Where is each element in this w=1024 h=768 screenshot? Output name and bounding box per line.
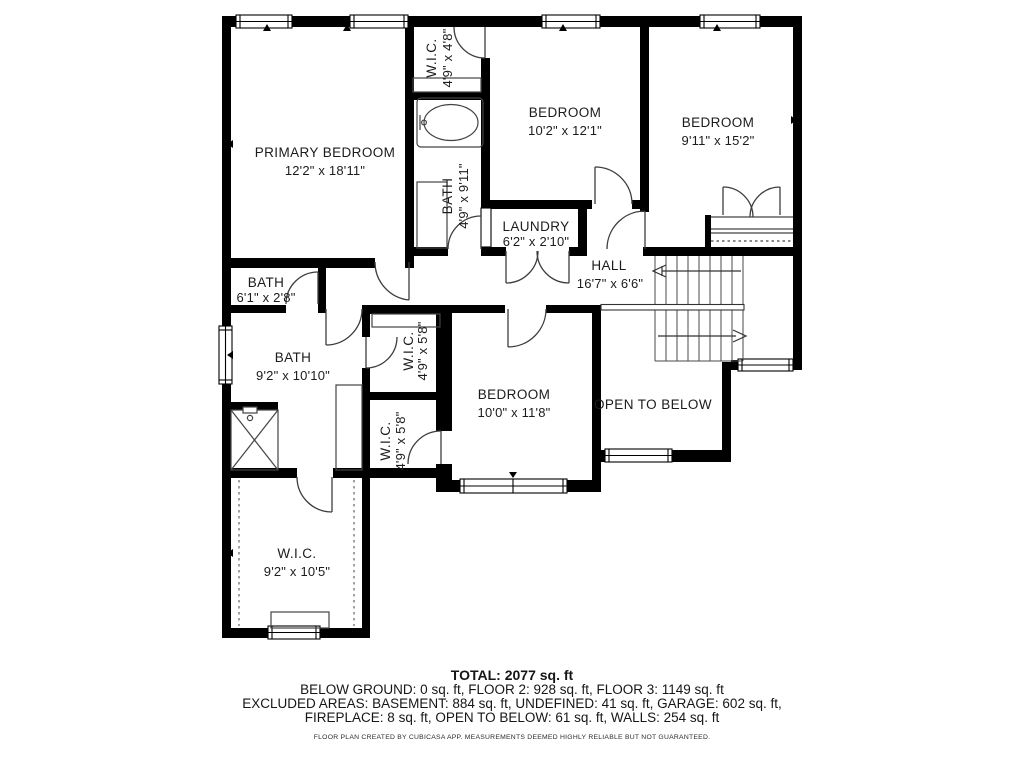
svg-text:BEDROOM: BEDROOM	[682, 115, 755, 130]
svg-text:PRIMARY BEDROOM: PRIMARY BEDROOM	[255, 145, 396, 160]
svg-text:W.I.C.: W.I.C.	[378, 421, 393, 460]
window-primary-1	[236, 15, 292, 28]
door-wic-top	[454, 27, 485, 58]
svg-text:6'2" x 2'10": 6'2" x 2'10"	[503, 234, 570, 249]
disclaimer: FLOOR PLAN CREATED BY CUBICASA APP. MEAS…	[0, 734, 1024, 741]
closet-bedroom-right	[711, 217, 793, 241]
doors-closet-bedroom-right	[723, 187, 780, 217]
svg-text:9'2" x 10'10": 9'2" x 10'10"	[256, 368, 330, 383]
room-label-bedroom-bottom: BEDROOM 10'0" x 11'8"	[478, 387, 551, 420]
floor-areas: BELOW GROUND: 0 sq. ft, FLOOR 2: 928 sq.…	[0, 683, 1024, 697]
svg-text:4'9" x 4'8": 4'9" x 4'8"	[440, 28, 455, 87]
window-bedroom-middle	[542, 15, 600, 28]
svg-text:BATH: BATH	[275, 350, 312, 365]
svg-text:HALL: HALL	[591, 258, 626, 273]
room-label-bedroom-middle: BEDROOM 10'2" x 12'1"	[528, 105, 602, 138]
room-label-wic-top: W.I.C. 4'9" x 4'8"	[424, 28, 455, 87]
room-label-open-to-below: OPEN TO BELOW	[594, 397, 712, 412]
svg-text:4'9" x 9'11": 4'9" x 9'11"	[456, 163, 471, 229]
floor-plan-drawing: PRIMARY BEDROOM 12'2" x 18'11" W.I.C. 4'…	[0, 0, 1024, 660]
door-wic-bottom	[297, 477, 332, 512]
svg-text:W.I.C.: W.I.C.	[401, 331, 416, 370]
shower	[231, 407, 278, 470]
svg-text:12'2" x 18'11": 12'2" x 18'11"	[285, 163, 366, 178]
room-label-bath-small: BATH 6'1" x 2'8"	[236, 275, 295, 305]
svg-text:W.I.C.: W.I.C.	[277, 546, 316, 561]
room-label-wic-upper: W.I.C. 4'9" x 5'8"	[401, 321, 430, 380]
room-label-bath-middle: BATH 4'9" x 9'11"	[440, 163, 471, 229]
svg-text:4'9" x 5'8": 4'9" x 5'8"	[393, 411, 408, 470]
bathtub	[417, 98, 483, 147]
svg-text:10'2" x 12'1": 10'2" x 12'1"	[528, 123, 602, 138]
svg-text:BEDROOM: BEDROOM	[478, 387, 551, 402]
door-wic-upper	[366, 337, 397, 368]
room-label-primary-bedroom: PRIMARY BEDROOM 12'2" x 18'11"	[255, 145, 396, 178]
vanity-bath-left	[336, 385, 362, 470]
room-label-hall: HALL 16'7" x 6'6"	[577, 258, 644, 291]
stair-railing	[601, 305, 744, 311]
svg-text:BATH: BATH	[440, 178, 455, 215]
excluded-areas-1: EXCLUDED AREAS: BASEMENT: 884 sq. ft, UN…	[0, 697, 1024, 711]
room-label-wic-bottom: W.I.C. 9'2" x 10'5"	[264, 546, 331, 579]
window-bedroom-bottom	[460, 479, 567, 493]
door-bath-left	[326, 309, 362, 345]
room-label-wic-lower: W.I.C. 4'9" x 5'8"	[378, 411, 408, 470]
svg-text:16'7" x 6'6": 16'7" x 6'6"	[577, 276, 644, 291]
floor-plan-page: PRIMARY BEDROOM 12'2" x 18'11" W.I.C. 4'…	[0, 0, 1024, 768]
svg-text:10'0" x 11'8": 10'0" x 11'8"	[478, 405, 551, 420]
room-label-laundry: LAUNDRY 6'2" x 2'10"	[502, 219, 569, 249]
doors-laundry-double	[506, 251, 569, 283]
svg-text:BATH: BATH	[248, 275, 285, 290]
total-area: TOTAL: 2077 sq. ft	[0, 668, 1024, 683]
wall-markers	[227, 24, 797, 557]
excluded-areas-2: FIREPLACE: 8 sq. ft, OPEN TO BELOW: 61 s…	[0, 711, 1024, 725]
door-bedroom-right	[607, 211, 645, 249]
door-bedroom-middle	[595, 167, 632, 204]
svg-text:6'1" x 2'8": 6'1" x 2'8"	[236, 290, 295, 305]
svg-text:4'9" x 5'8": 4'9" x 5'8"	[415, 321, 430, 380]
pocket-opening-laundry	[481, 208, 491, 247]
svg-text:BEDROOM: BEDROOM	[529, 105, 602, 120]
svg-text:LAUNDRY: LAUNDRY	[502, 219, 569, 234]
area-summary: TOTAL: 2077 sq. ft BELOW GROUND: 0 sq. f…	[0, 668, 1024, 741]
room-label-bath-left: BATH 9'2" x 10'10"	[256, 350, 330, 383]
window-open-below	[605, 449, 672, 462]
window-stair-landing	[738, 359, 793, 371]
svg-text:OPEN TO BELOW: OPEN TO BELOW	[594, 397, 712, 412]
doors	[286, 27, 780, 512]
room-label-bedroom-right: BEDROOM 9'11" x 15'2"	[682, 115, 755, 148]
svg-text:W.I.C.: W.I.C.	[424, 38, 439, 77]
door-bedroom-bottom	[508, 309, 546, 347]
svg-text:9'2" x 10'5": 9'2" x 10'5"	[264, 564, 331, 579]
svg-text:9'11" x 15'2": 9'11" x 15'2"	[682, 133, 755, 148]
door-wic-lower	[408, 431, 441, 464]
window-bedroom-right	[700, 15, 760, 28]
walls	[222, 16, 802, 638]
stair-arrow-down	[658, 330, 746, 342]
window-primary-2	[350, 15, 408, 28]
door-primary-bedroom	[375, 262, 409, 300]
